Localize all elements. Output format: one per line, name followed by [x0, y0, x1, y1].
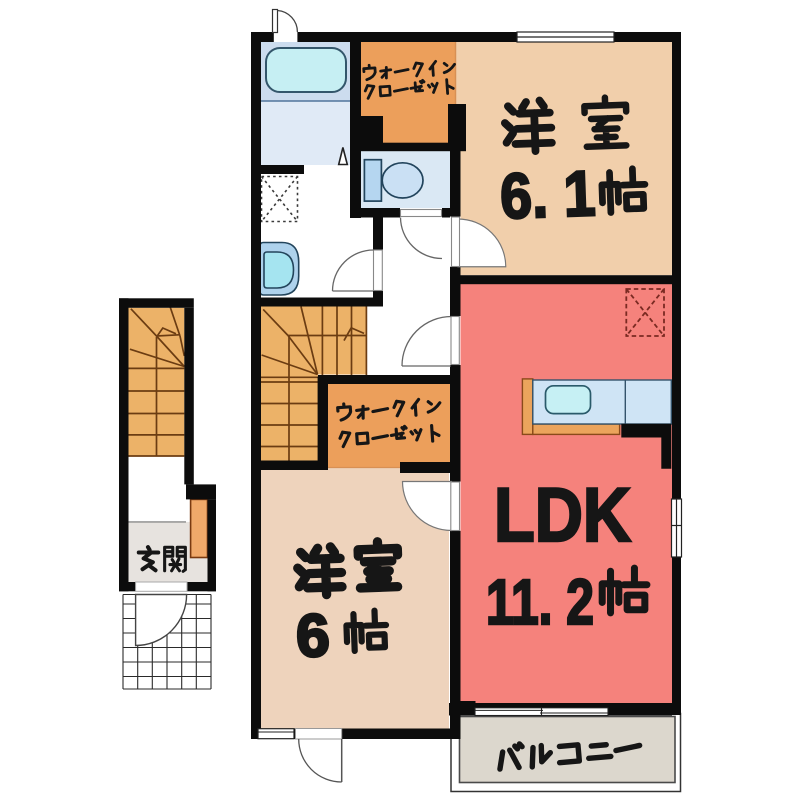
svg-text:11. 2: 11. 2: [486, 566, 594, 638]
svg-text:6: 6: [295, 602, 331, 670]
svg-text:LDK: LDK: [494, 473, 631, 558]
svg-text:6. 1: 6. 1: [499, 157, 596, 232]
